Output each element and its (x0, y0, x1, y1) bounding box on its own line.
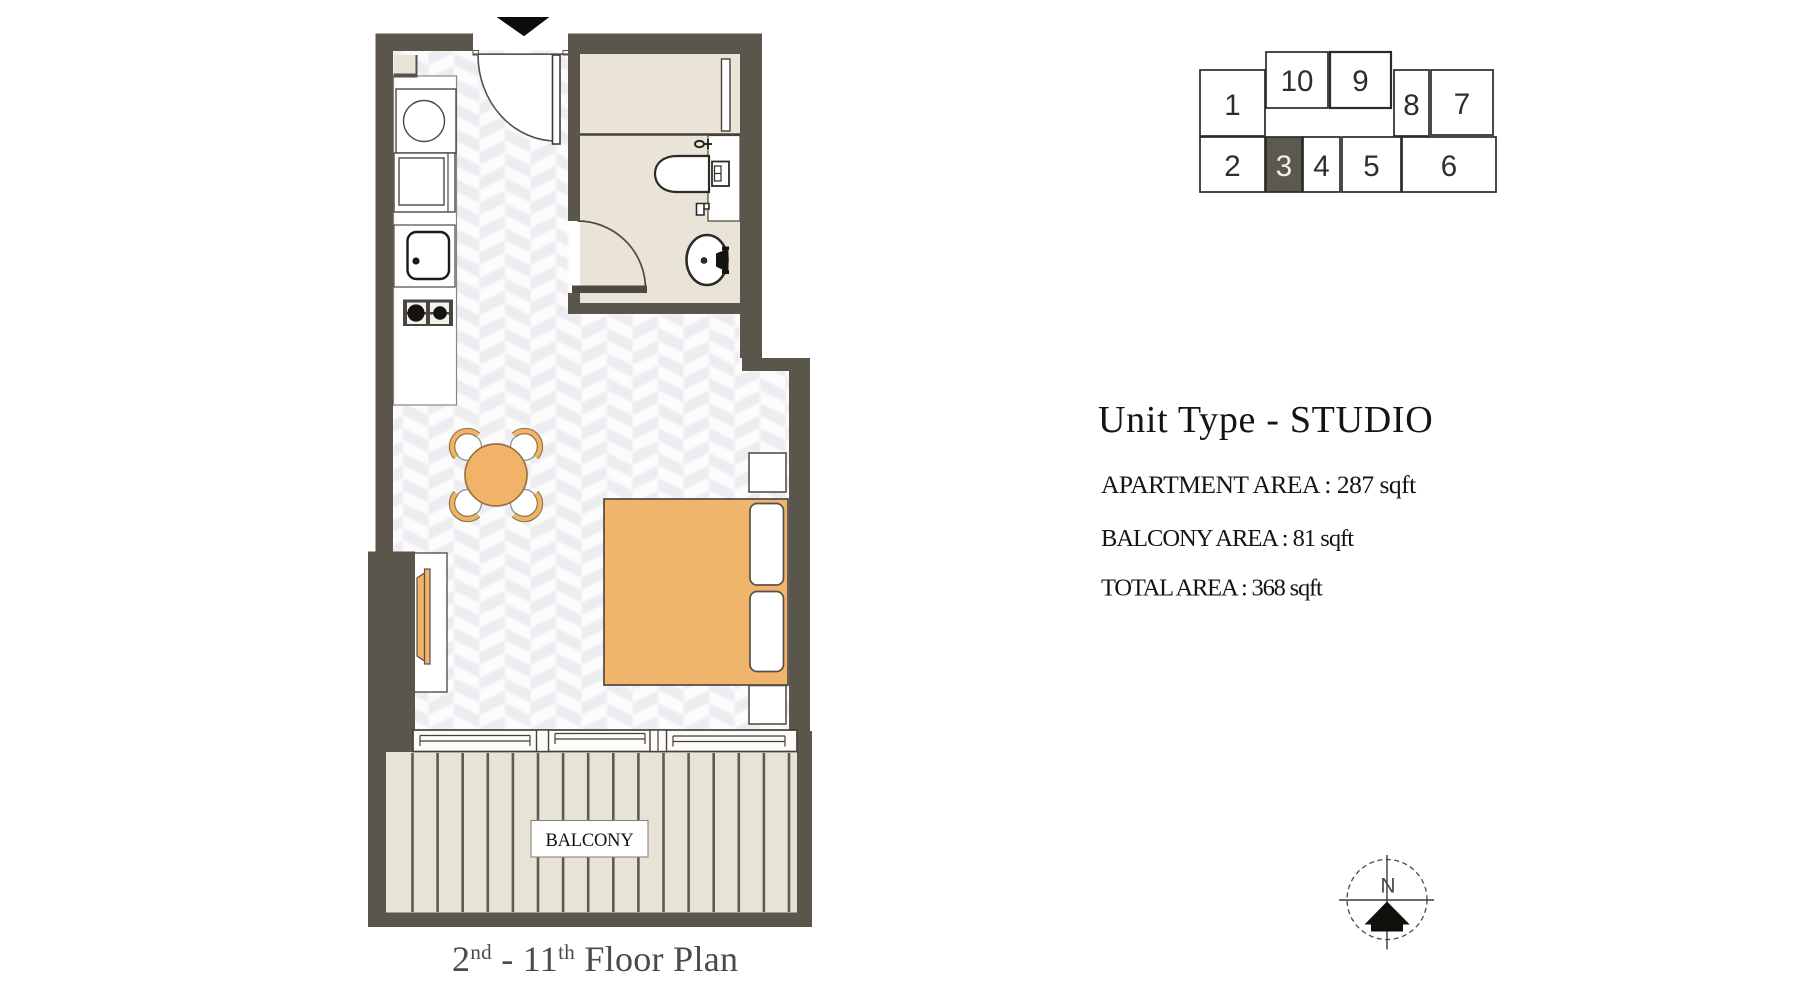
svg-text:N: N (1380, 875, 1395, 898)
svg-text:8: 8 (1403, 89, 1419, 122)
svg-text:1: 1 (1224, 89, 1240, 122)
svg-text:TOTAL AREA : 368 sqft: TOTAL AREA : 368 sqft (1101, 575, 1323, 602)
svg-text:APARTMENT AREA : 287 sqft: APARTMENT AREA : 287 sqft (1101, 470, 1416, 499)
svg-text:BALCONY: BALCONY (545, 831, 633, 851)
svg-text:6: 6 (1441, 150, 1457, 183)
svg-text:7: 7 (1454, 88, 1470, 121)
svg-text:BALCONY AREA : 81 sqft: BALCONY AREA : 81 sqft (1101, 525, 1354, 552)
svg-text:2: 2 (1224, 150, 1240, 183)
svg-text:10: 10 (1281, 65, 1314, 98)
svg-text:Unit Type - STUDIO: Unit Type - STUDIO (1098, 399, 1433, 441)
svg-text:4: 4 (1313, 150, 1329, 183)
svg-text:9: 9 (1352, 65, 1368, 98)
svg-text:3: 3 (1276, 150, 1292, 183)
svg-text:5: 5 (1363, 150, 1379, 183)
svg-text:2nd - 11th Floor Plan: 2nd - 11th Floor Plan (452, 939, 738, 979)
